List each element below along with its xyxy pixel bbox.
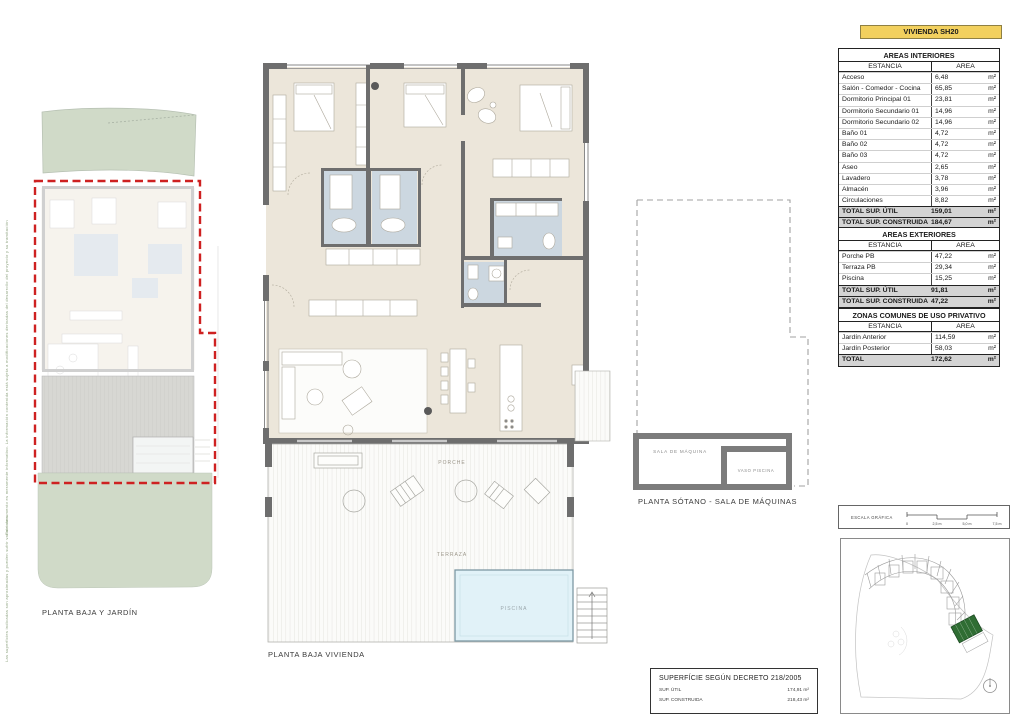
faded-dwelling-plan: [42, 186, 194, 386]
scale-bar: ESCALA GRÁFICA 0 2,5 m 5,0 m 7,5 m: [839, 506, 1009, 528]
decreto-surface-box: SUPERFÍCIE SEGÚN DECRETO 218/2005 SUP. Ú…: [650, 668, 818, 714]
table-areas-interiores: AREAS INTERIORES ESTANCIAAREA Acceso 6,4…: [838, 48, 1000, 230]
table-row: Jardín Anterior 114,59 m²: [839, 332, 999, 343]
table-row: Terraza PB 29,34 m²: [839, 262, 999, 273]
basement-plan-caption: PLANTA SÓTANO - SALA DE MÁQUINAS: [638, 497, 797, 506]
table-column-headers: ESTANCIAAREA: [839, 322, 999, 332]
table-title: ZONAS COMUNES DE USO PRIVATIVO: [839, 309, 999, 322]
margin-disclaimer-text-2: Las superficies indicadas son aproximada…: [4, 516, 9, 662]
table-title: AREAS INTERIORES: [839, 49, 999, 62]
context-sketch: [888, 627, 907, 655]
table-row: Salón - Comedor - Cocina 65,85 m²: [839, 83, 999, 94]
decreto-title: SUPERFÍCIE SEGÚN DECRETO 218/2005: [659, 675, 809, 682]
sala-maquina-label: SALA DE MÁQUINA: [653, 448, 707, 454]
table-row: Acceso 6,48 m²: [839, 72, 999, 83]
table-row: Baño 02 4,72 m²: [839, 139, 999, 150]
side-deck: [575, 371, 610, 441]
porche-label: PORCHE: [438, 460, 465, 466]
scale-tick: 0: [906, 522, 908, 526]
bed: [294, 83, 334, 131]
table-row: Baño 03 4,72 m²: [839, 150, 999, 161]
table-areas-exteriores: AREAS EXTERIORES ESTANCIAAREA Porche PB …: [838, 227, 1000, 308]
machine-room: [633, 433, 792, 490]
table-column-headers: ESTANCIAAREA: [839, 62, 999, 72]
table-zonas-comunes: ZONAS COMUNES DE USO PRIVATIVO ESTANCIAA…: [838, 308, 1000, 367]
table-total-row: TOTAL SUP. CONSTRUIDA 47,22 m²: [839, 296, 999, 307]
table-column-headers: ESTANCIAAREA: [839, 241, 999, 251]
table-row: Porche PB 47,22 m²: [839, 251, 999, 262]
vaso-piscina-label: VASO PISCINA: [738, 468, 774, 473]
table-row: Baño 01 4,72 m²: [839, 128, 999, 139]
bed: [520, 85, 572, 131]
dwelling-floor-plan: PORCHE TERRAZA PISCINA: [252, 53, 622, 663]
margin-disclaimer-text: Este documento es meramente informativo.…: [4, 220, 9, 535]
highlighted-unit: [951, 615, 988, 654]
left-plan-pool: [133, 437, 210, 473]
left-plan-caption: PLANTA BAJA Y JARDÍN: [42, 608, 138, 617]
unit-title-banner: VIVIENDA SH20: [860, 25, 1002, 39]
terraza-label: TERRAZA: [437, 552, 467, 558]
table-row: Jardín Posterior 58,03 m²: [839, 343, 999, 354]
scale-tick: 5,0 m: [963, 522, 972, 526]
table-row: Aseo 2,65 m²: [839, 162, 999, 173]
decreto-row: SUP. CONSTRUIDA 218,43 m²: [659, 698, 809, 703]
table-title: AREAS EXTERIORES: [839, 228, 999, 241]
north-compass-icon: [984, 678, 997, 693]
plan-sheet: Este documento es meramente informativo.…: [0, 0, 1024, 723]
scale-tick: 2,5 m: [933, 522, 942, 526]
table-row: Circulaciones 8,82 m²: [839, 195, 999, 206]
basement-machine-room-plan: SALA DE MÁQUINA VASO PISCINA: [626, 190, 821, 510]
decreto-row: SUP. ÚTIL 174,91 m²: [659, 688, 809, 693]
table-row: Lavadero 3,78 m²: [839, 173, 999, 184]
table-row: Almacén 3,96 m²: [839, 184, 999, 195]
stairs: [577, 588, 607, 643]
site-plan-box: [840, 538, 1010, 714]
center-plan-caption: PLANTA BAJA VIVIENDA: [268, 650, 365, 659]
site-plan: [841, 539, 1009, 713]
scale-bar-box: ESCALA GRÁFICA 0 2,5 m 5,0 m 7,5 m: [838, 505, 1010, 529]
bed: [404, 83, 446, 127]
rear-garden: [38, 473, 212, 588]
table-row: Dormitorio Secundario 02 14,96 m²: [839, 117, 999, 128]
table-total-row: TOTAL 172,62 m²: [839, 354, 999, 365]
front-garden: [42, 108, 196, 176]
scale-bar-label: ESCALA GRÁFICA: [851, 515, 893, 520]
scale-tick: 7,5 m: [993, 522, 1002, 526]
table-row: Piscina 15,25 m²: [839, 273, 999, 284]
table-total-row: TOTAL SUP. ÚTIL 91,81 m²: [839, 285, 999, 296]
table-total-row: TOTAL SUP. ÚTIL 159,01 m²: [839, 206, 999, 217]
table-row: Dormitorio Principal 01 23,81 m²: [839, 94, 999, 105]
table-row: Dormitorio Secundario 01 14,96 m²: [839, 106, 999, 117]
ground-floor-garden-plan: [28, 106, 248, 626]
piscina-label: PISCINA: [500, 606, 527, 612]
